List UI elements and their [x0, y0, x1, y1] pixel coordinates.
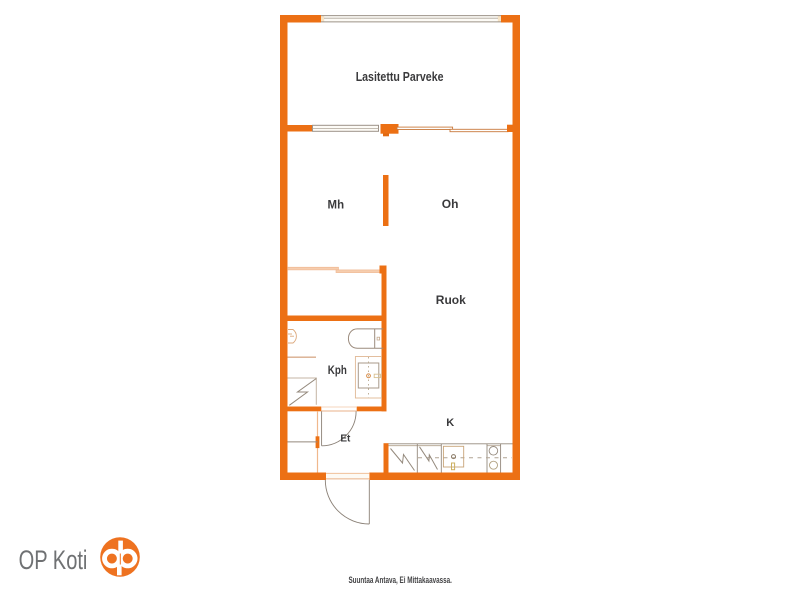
- svg-text:Oh: Oh: [442, 197, 459, 211]
- svg-text:Suuntaa Antava, Ei Mittakaavas: Suuntaa Antava, Ei Mittakaavassa.: [348, 575, 452, 586]
- svg-text:Ruok: Ruok: [436, 293, 466, 307]
- svg-text:K: K: [446, 417, 454, 429]
- svg-text:OP Koti: OP Koti: [19, 545, 88, 575]
- svg-text:Lasitettu Parveke: Lasitettu Parveke: [356, 70, 444, 84]
- svg-text:Et: Et: [340, 434, 351, 445]
- svg-text:Kph: Kph: [328, 363, 347, 377]
- svg-text:Mh: Mh: [328, 198, 345, 212]
